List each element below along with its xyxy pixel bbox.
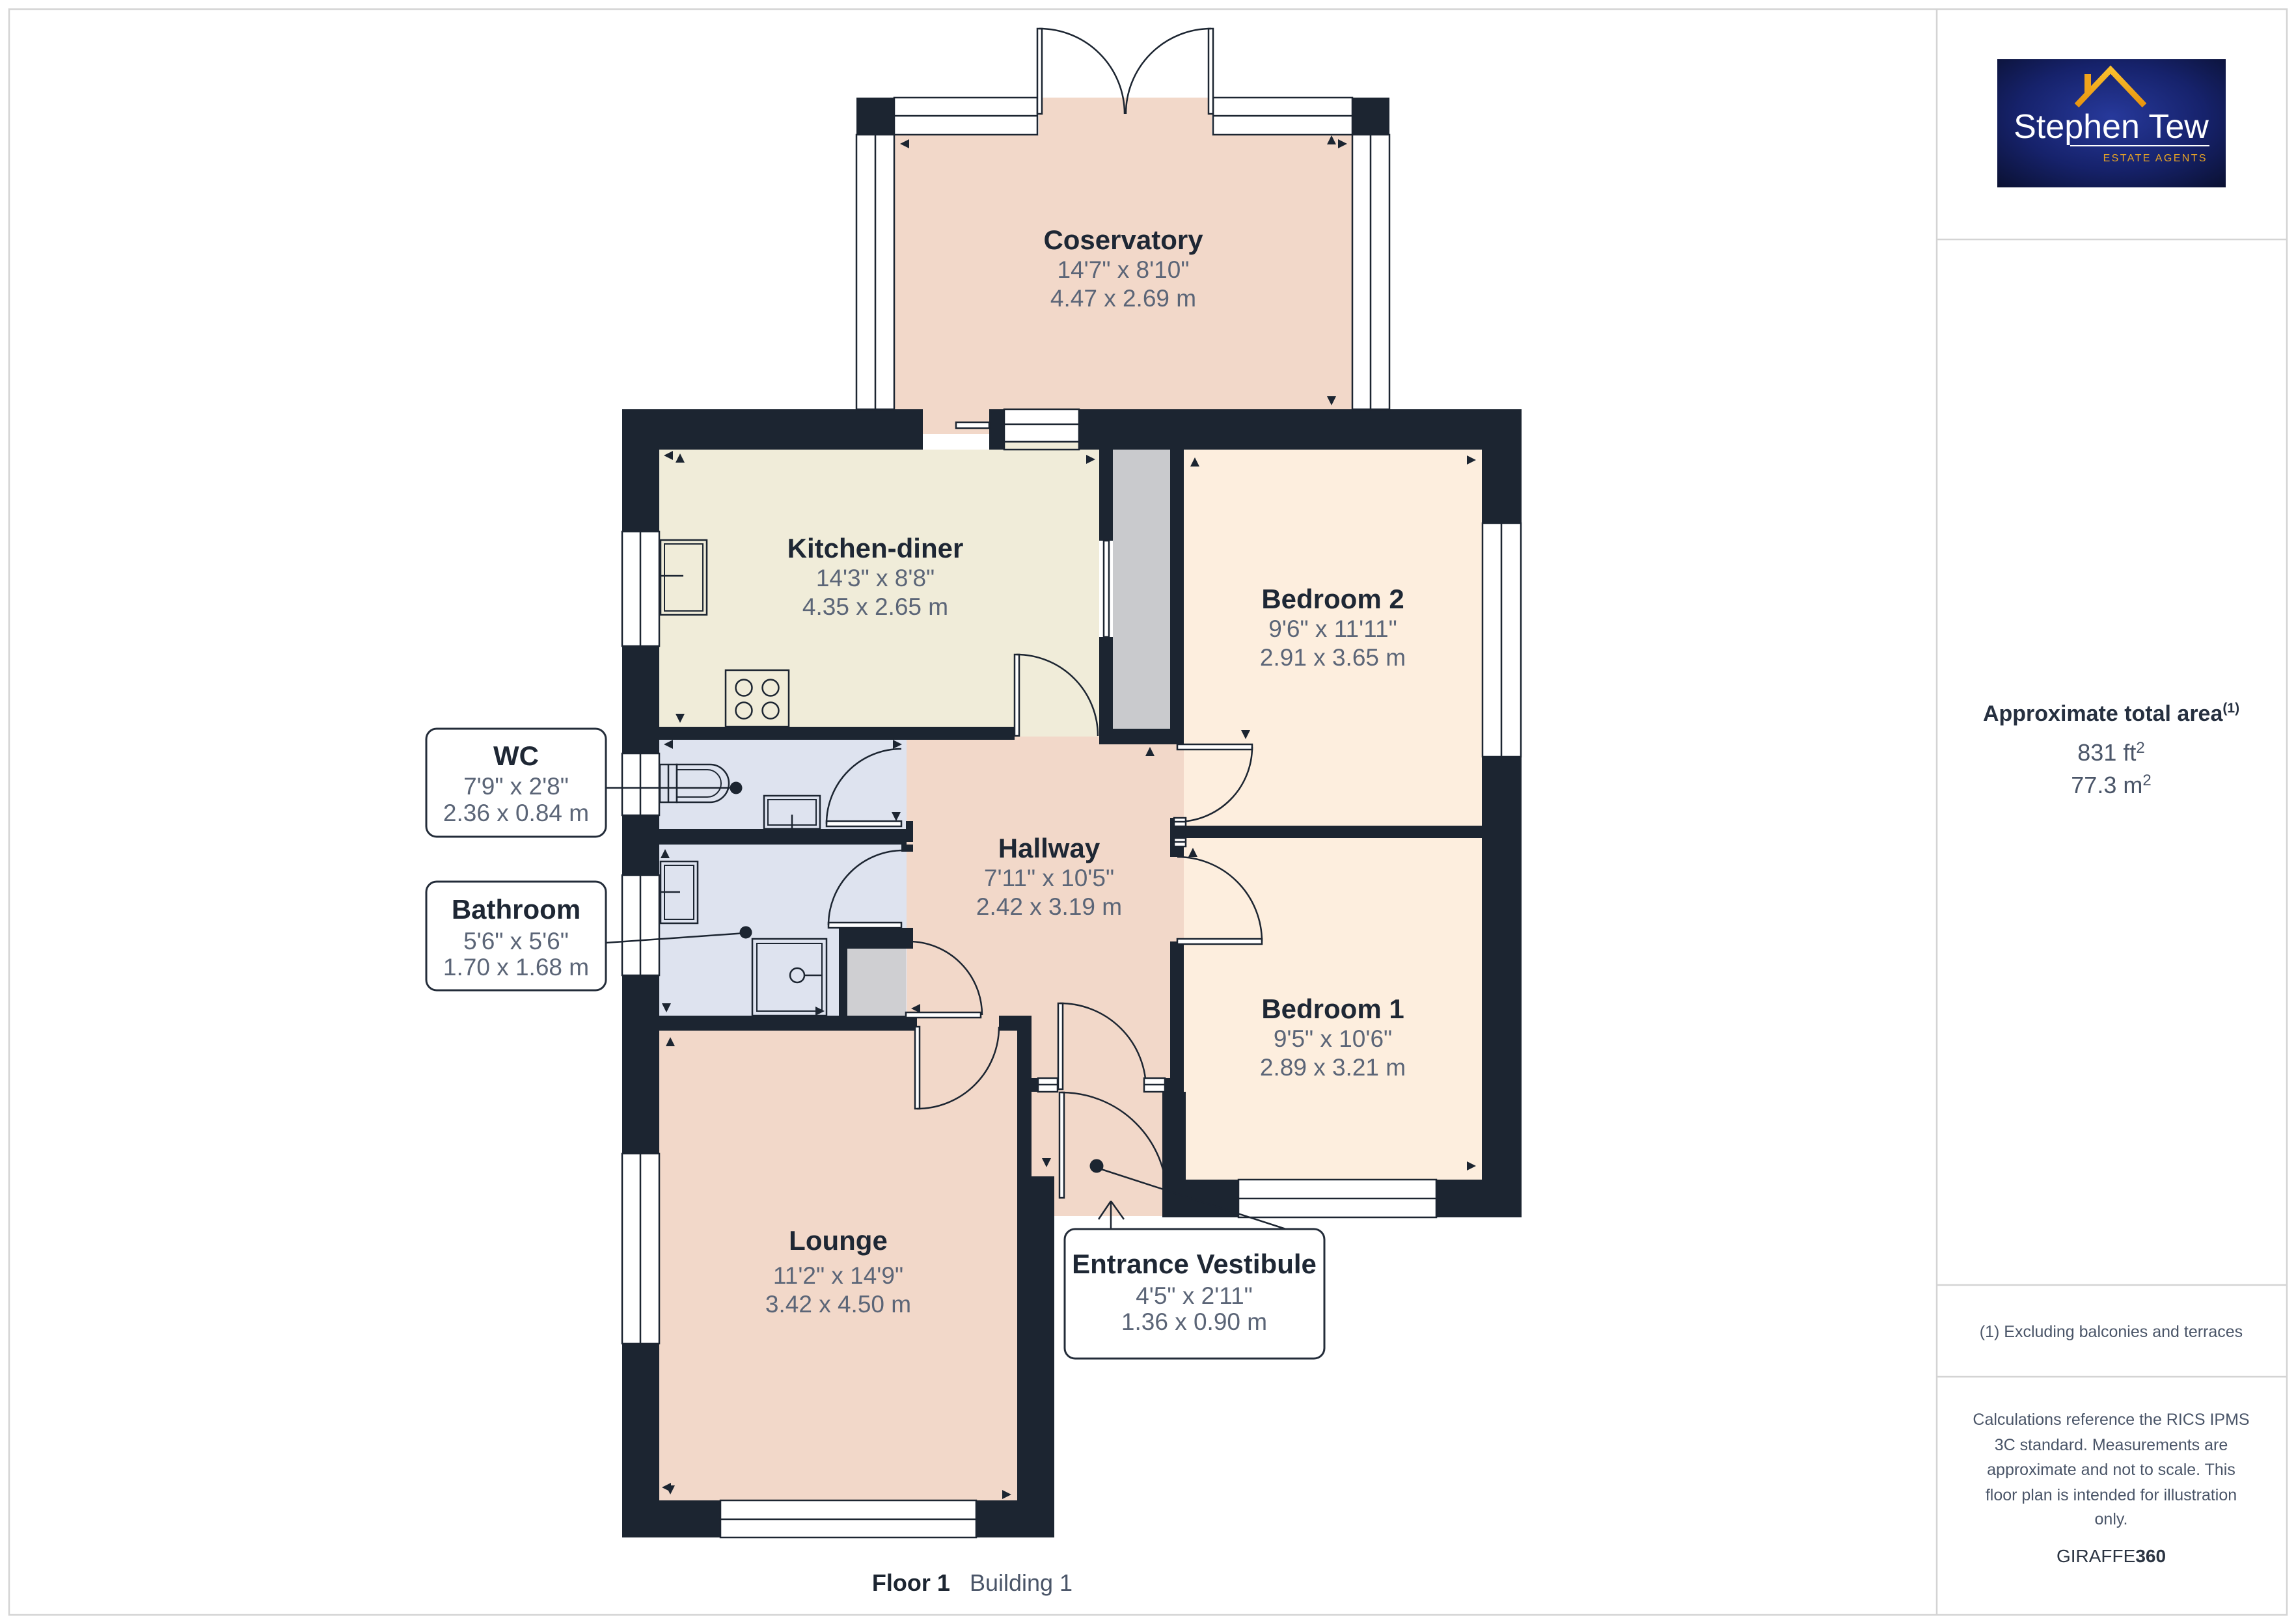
svg-text:3C standard. Measurements are: 3C standard. Measurements are [1995, 1436, 2228, 1454]
svg-text:GIRAFFE360: GIRAFFE360 [2057, 1546, 2166, 1566]
svg-text:1.36 x 0.90 m: 1.36 x 0.90 m [1121, 1308, 1267, 1335]
svg-text:7'11" x 10'5": 7'11" x 10'5" [984, 865, 1114, 891]
svg-text:14'7" x 8'10": 14'7" x 8'10" [1058, 256, 1190, 283]
svg-text:1.70 x 1.68 m: 1.70 x 1.68 m [443, 954, 589, 981]
svg-text:(1) Excluding balconies and te: (1) Excluding balconies and terraces [1980, 1323, 2243, 1341]
svg-text:Entrance Vestibule: Entrance Vestibule [1072, 1249, 1317, 1279]
svg-text:WC: WC [493, 740, 539, 771]
svg-text:4'5" x 2'11": 4'5" x 2'11" [1136, 1282, 1253, 1309]
svg-text:Bedroom 2: Bedroom 2 [1261, 584, 1404, 614]
svg-text:ESTATE AGENTS: ESTATE AGENTS [2103, 153, 2207, 164]
svg-text:Stephen Tew: Stephen Tew [2014, 108, 2209, 146]
svg-text:9'6" x 11'11": 9'6" x 11'11" [1268, 616, 1397, 642]
svg-text:3.42 x 4.50 m: 3.42 x 4.50 m [765, 1291, 911, 1318]
svg-text:Calculations reference the RIC: Calculations reference the RICS IPMS [1973, 1411, 2249, 1429]
svg-text:7'9" x 2'8": 7'9" x 2'8" [463, 773, 569, 800]
svg-text:2.89 x 3.21 m: 2.89 x 3.21 m [1260, 1054, 1406, 1081]
svg-text:4.47 x 2.69 m: 4.47 x 2.69 m [1050, 285, 1196, 312]
svg-text:11'2" x 14'9": 11'2" x 14'9" [773, 1262, 903, 1289]
svg-text:Lounge: Lounge [789, 1225, 888, 1256]
svg-text:only.: only. [2095, 1510, 2128, 1528]
svg-text:Bathroom: Bathroom [452, 894, 581, 925]
svg-text:5'6" x 5'6": 5'6" x 5'6" [463, 928, 569, 954]
svg-text:77.3 m2: 77.3 m2 [2071, 772, 2151, 798]
svg-text:2.36 x 0.84 m: 2.36 x 0.84 m [443, 800, 589, 826]
svg-text:Floor 1 Building 1: Floor 1 Building 1 [872, 1569, 1073, 1596]
svg-text:Approximate total area(1): Approximate total area(1) [1983, 701, 2239, 726]
svg-text:831 ft2: 831 ft2 [2077, 739, 2144, 766]
svg-text:2.91 x 3.65 m: 2.91 x 3.65 m [1260, 644, 1406, 671]
svg-text:floor plan is intended for ill: floor plan is intended for illustration [1986, 1486, 2237, 1504]
svg-text:Bedroom 1: Bedroom 1 [1261, 994, 1404, 1024]
svg-text:approximate and not to scale.: approximate and not to scale. This [1987, 1461, 2235, 1479]
svg-text:Coservatory: Coservatory [1043, 224, 1203, 255]
svg-text:4.35 x 2.65 m: 4.35 x 2.65 m [802, 593, 948, 620]
svg-text:Kitchen-diner: Kitchen-diner [787, 533, 964, 563]
svg-text:2.42 x 3.19 m: 2.42 x 3.19 m [976, 893, 1122, 920]
svg-text:14'3" x 8'8": 14'3" x 8'8" [816, 565, 935, 591]
svg-text:Hallway: Hallway [998, 833, 1100, 863]
svg-text:9'5" x 10'6": 9'5" x 10'6" [1274, 1025, 1392, 1052]
